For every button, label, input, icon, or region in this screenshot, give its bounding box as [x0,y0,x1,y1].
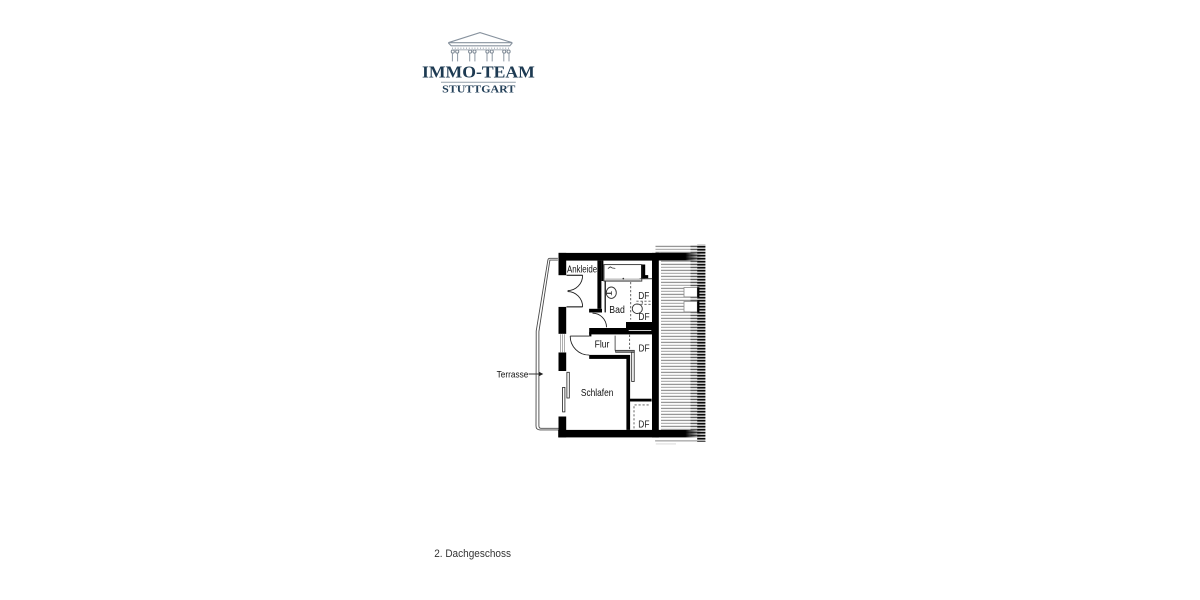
svg-text:Terrasse: Terrasse [497,370,529,381]
svg-text:IMMO-TEAM: IMMO-TEAM [422,62,535,81]
svg-text:DF: DF [638,312,649,323]
svg-text:STUTTGART: STUTTGART [442,85,516,96]
svg-text:Flur: Flur [595,340,610,351]
svg-text:DF: DF [639,344,650,355]
svg-text:Ankleide: Ankleide [567,264,597,275]
svg-text:DF: DF [638,420,649,431]
svg-text:Bad: Bad [609,305,625,316]
svg-text:Schlafen: Schlafen [581,388,614,399]
svg-text:DF: DF [638,291,649,302]
svg-text:2. Dachgeschoss: 2. Dachgeschoss [434,548,511,560]
